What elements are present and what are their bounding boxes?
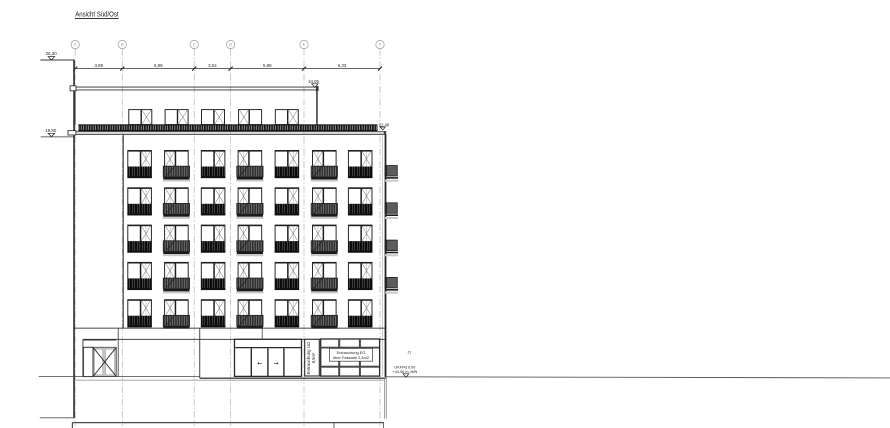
- svg-text:8,5m²: 8,5m²: [311, 352, 316, 363]
- svg-text:3,04: 3,04: [208, 63, 217, 68]
- svg-text:26,30: 26,30: [46, 51, 58, 56]
- svg-text:24,05: 24,05: [308, 79, 319, 84]
- svg-text:19,80: 19,80: [45, 128, 57, 133]
- svg-text:+44,56 m üNN: +44,56 m üNN: [393, 370, 418, 374]
- svg-text:F: F: [379, 42, 382, 47]
- svg-text:B: B: [121, 42, 124, 47]
- svg-text:J1: J1: [408, 350, 412, 354]
- svg-text:5,99: 5,99: [263, 63, 272, 68]
- svg-text:3,89: 3,89: [94, 63, 103, 68]
- svg-text:Ansicht Süd/Ost: Ansicht Süd/Ost: [75, 12, 118, 19]
- svg-text:D: D: [229, 42, 232, 47]
- svg-text:5,99: 5,99: [154, 63, 163, 68]
- svg-text:E: E: [303, 42, 306, 47]
- svg-text:C: C: [193, 42, 196, 47]
- svg-text:OKFFB 0,00: OKFFB 0,00: [394, 365, 415, 369]
- svg-text:A: A: [74, 42, 77, 47]
- svg-text:über Fassade 2,4m2: über Fassade 2,4m2: [333, 355, 369, 360]
- svg-text:6,33: 6,33: [338, 63, 347, 68]
